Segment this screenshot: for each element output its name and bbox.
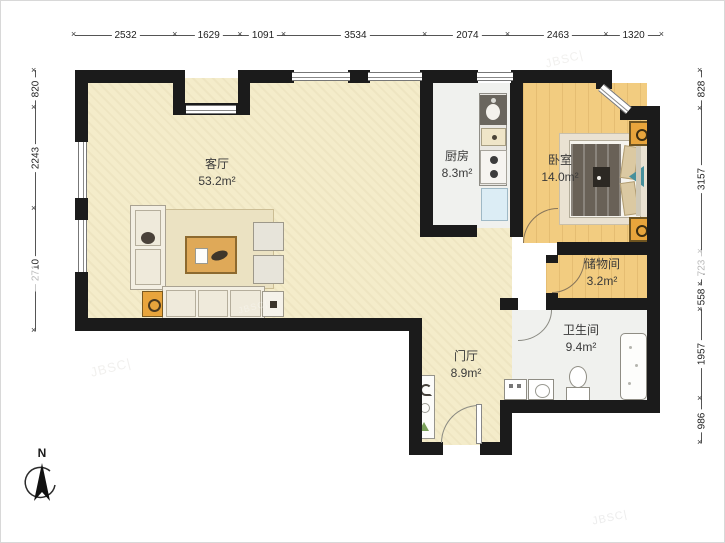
dimension-segment: 3157 (694, 108, 710, 251)
dimension-value: 1629 (195, 30, 223, 41)
dimension-value: 1091 (249, 30, 277, 41)
wall (75, 318, 422, 331)
side-table (142, 291, 163, 317)
sofa (162, 286, 265, 320)
dimension-value: 2710 (31, 256, 42, 284)
dimension-segment: 2710 (28, 208, 44, 331)
dimension-value: 2074 (453, 30, 481, 41)
counter-item (481, 128, 506, 146)
side-table (262, 291, 284, 317)
dimension-segment: 986 (694, 398, 710, 443)
watermark-text: JBSC| (591, 508, 629, 527)
sofa (130, 205, 166, 290)
wall (75, 198, 88, 220)
wall (348, 70, 370, 83)
north-compass: N (20, 447, 64, 512)
window (78, 142, 87, 198)
faucet (491, 98, 496, 103)
wall (75, 70, 178, 83)
wall (500, 298, 518, 310)
wall (238, 70, 250, 115)
side-table-decor (270, 301, 277, 308)
window (78, 220, 87, 272)
sink-basin (486, 104, 500, 120)
wall (511, 70, 603, 83)
floor-plan-image: 客厅 53.2m² 厨房 8.3m² 卧室 14.0m² 储物间 3.2m² 卫… (0, 0, 725, 543)
throw-pillow (141, 232, 155, 244)
room-area: 53.2m² (198, 173, 235, 190)
dimension-value: 828 (697, 77, 708, 100)
window (368, 72, 422, 81)
tub-dot (629, 346, 632, 349)
wall (512, 400, 660, 413)
dimension-segment: 2074 (426, 28, 509, 44)
washer-knob (517, 384, 521, 388)
sofa-cushion (198, 290, 228, 317)
sofa-cushion (230, 290, 261, 317)
dimension-value: 820 (31, 77, 42, 100)
wall (75, 70, 88, 142)
room-name: 卧室 (541, 152, 578, 169)
sofa-cushion (135, 249, 161, 285)
dimension-value: 2532 (111, 30, 139, 41)
toilet (566, 366, 589, 400)
fridge (481, 188, 508, 221)
dimension-value: 1957 (697, 340, 708, 368)
window (292, 72, 350, 81)
compass-arrow-icon (22, 459, 62, 507)
bathtub (620, 333, 647, 400)
toilet-bowl (569, 366, 587, 388)
armchair (253, 255, 284, 284)
coffee-table (185, 236, 237, 274)
headboard (636, 143, 641, 216)
bathroom-sink (528, 379, 554, 400)
washing-machine (504, 379, 527, 400)
bed (569, 140, 641, 218)
wall (510, 83, 523, 237)
room-label-living: 客厅 53.2m² (198, 156, 235, 190)
bed-pillow-dark (593, 167, 610, 187)
wall (420, 83, 433, 233)
tub-dot (628, 382, 631, 385)
room-area: 8.3m² (442, 165, 473, 182)
room-name: 卫生间 (563, 322, 599, 339)
room-name: 客厅 (198, 156, 235, 173)
dimension-segment: 2243 (28, 107, 44, 208)
stove (480, 150, 507, 184)
room-name: 储物间 (584, 256, 620, 273)
room-name: 厨房 (442, 148, 473, 165)
dimension-ruler-left: 820 2243 2710 (28, 70, 44, 331)
window (477, 72, 513, 81)
wall (420, 70, 478, 83)
room-label-bathroom: 卫生间 9.4m² (563, 322, 599, 356)
dimension-segment: 2463 (509, 28, 607, 44)
room-area: 14.0m² (541, 169, 578, 186)
toilet-tank (566, 387, 590, 401)
room-label-storage: 储物间 3.2m² (584, 256, 620, 290)
tub-dot (635, 364, 638, 367)
dimension-ruler-right: 828 3157 723 558 1957 986 (694, 70, 710, 443)
wall (500, 400, 512, 455)
dimension-value: 1320 (619, 30, 647, 41)
dimension-value: 3534 (341, 30, 369, 41)
side-table-decor (148, 299, 161, 312)
room-name: 门厅 (451, 348, 482, 365)
burner (490, 156, 498, 164)
dimension-value: 2463 (544, 30, 572, 41)
room-area: 8.9m² (451, 365, 482, 382)
sofa-cushion (166, 290, 196, 317)
dimension-value: 2243 (31, 144, 42, 172)
room-area: 3.2m² (584, 273, 620, 290)
dimension-value: 3157 (697, 165, 708, 193)
kitchen-sink (480, 95, 507, 125)
dimension-segment: 1320 (607, 28, 660, 44)
dimension-segment: 1957 (694, 309, 710, 398)
dimension-segment: 2532 (75, 28, 176, 44)
sink-basin (535, 384, 550, 398)
washer-knob (509, 384, 513, 388)
counter-dot (492, 135, 497, 140)
armchair (253, 222, 284, 251)
wall (552, 298, 660, 310)
burner (490, 170, 498, 178)
table-decor (210, 249, 229, 263)
north-label: N (20, 447, 64, 459)
entry-door-leaf (476, 404, 482, 444)
watermark-text: JBSC| (544, 48, 585, 71)
dimension-ruler-top: 2532 1629 1091 3534 2074 2463 1320 (75, 28, 660, 44)
room-label-bedroom: 卧室 14.0m² (541, 152, 578, 186)
dimension-segment: 1629 (176, 28, 241, 44)
dimension-segment: 3534 (285, 28, 426, 44)
room-label-kitchen: 厨房 8.3m² (442, 148, 473, 182)
dimension-value: 723 (697, 256, 708, 279)
room-area: 9.4m² (563, 339, 599, 356)
window (186, 105, 236, 114)
table-tray (195, 248, 208, 264)
wall (409, 442, 443, 455)
wall (250, 70, 294, 83)
watermark-text: JBSC| (89, 355, 133, 380)
wall (557, 242, 660, 255)
room-label-hall: 门厅 8.9m² (451, 348, 482, 382)
pillow-dot (597, 176, 601, 180)
wall (420, 225, 477, 237)
dimension-value: 986 (697, 409, 708, 432)
dimension-segment: 1091 (241, 28, 285, 44)
wall (647, 106, 660, 413)
wall (409, 331, 422, 455)
